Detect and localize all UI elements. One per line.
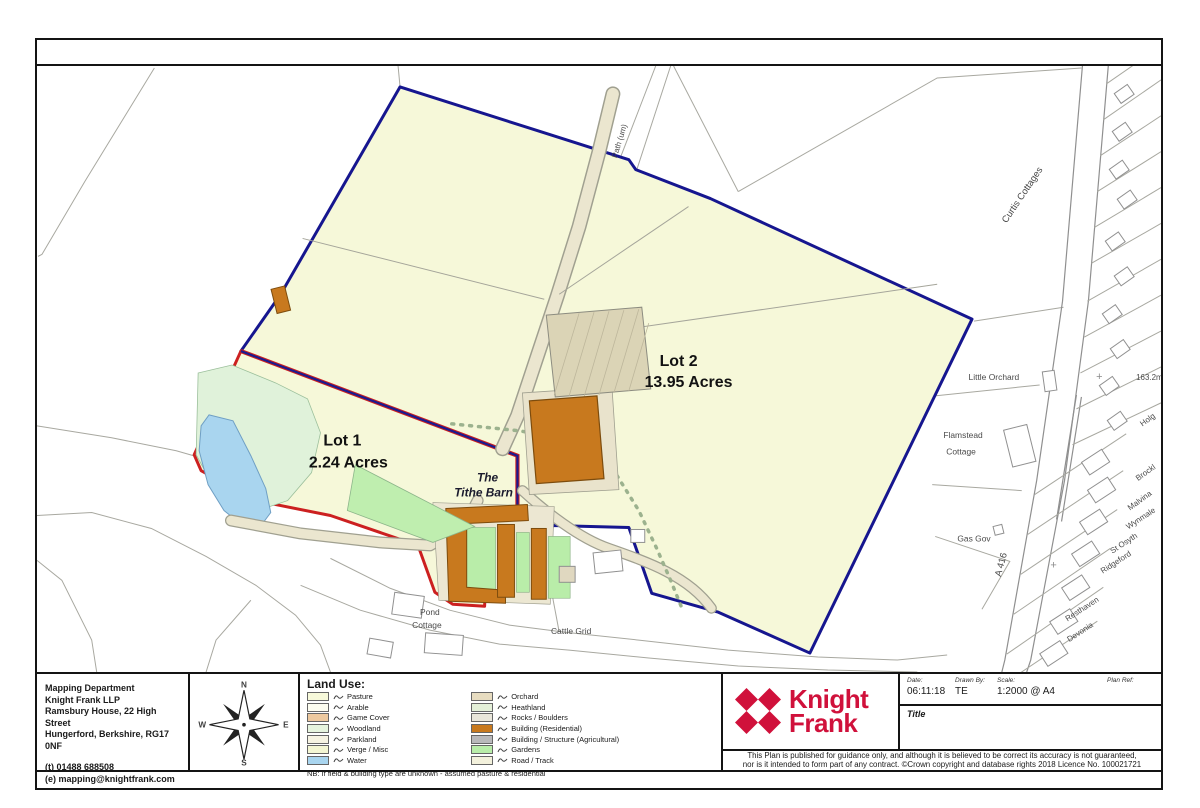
legend-item: Road / Track (471, 756, 714, 766)
legend-item: Building (Residential) (471, 724, 714, 734)
survey-cross-1: + (1096, 371, 1102, 383)
title-field: Title (900, 706, 1161, 749)
field-symbol-icon (333, 735, 344, 743)
svg-text:S: S (241, 759, 247, 766)
tithe-barn-label-2: Tithe Barn (454, 486, 513, 500)
legend-item: Parkland (307, 734, 471, 744)
address-line: Hungerford, Berkshire, RG17 0NF (45, 729, 184, 752)
flamstead-label-2: Cottage (946, 447, 976, 457)
legend-item: Water (307, 756, 471, 766)
svg-text:N: N (241, 680, 247, 689)
field-symbol-icon (497, 735, 508, 743)
flamstead-label-1: Flamstead (943, 430, 983, 440)
address-line: Knight Frank LLP (45, 695, 184, 707)
cattle-grid-label: Cattle Grid (551, 626, 592, 636)
footer: Mapping Department Knight Frank LLP Rams… (37, 674, 1161, 772)
field-symbol-icon (497, 746, 508, 754)
pond-cottage-label: Cottage (412, 620, 442, 630)
field-symbol-icon (497, 756, 508, 764)
map-area: Tithe Barn (37, 66, 1161, 674)
plan-sheet: Tithe Barn (35, 38, 1163, 790)
legend-item: Game Cover (307, 713, 471, 723)
knight-frank-logo: Knight Frank (723, 674, 900, 749)
swatch-heathland (471, 703, 493, 712)
lot1-title: Lot 1 (323, 433, 361, 450)
brand-name-line2: Frank (789, 711, 868, 735)
legend-item: Building / Structure (Agricultural) (471, 734, 714, 744)
legend-note: NB: If field & building type are unknown… (307, 769, 714, 778)
swatch-arable (307, 703, 329, 712)
swatch-orchard (471, 692, 493, 701)
scale-field: Scale: 1:2000 @ A4 (997, 674, 1107, 704)
house-name-holg: Holg (1138, 411, 1157, 428)
swatch-building-agricultural (471, 735, 493, 744)
field-symbol-icon (333, 746, 344, 754)
lot2-area: 13.95 Acres (645, 374, 733, 391)
legend-item: Pasture (307, 692, 471, 702)
legend-item: Woodland (307, 724, 471, 734)
legend-item: Gardens (471, 745, 714, 755)
a416-road (1002, 66, 1108, 672)
date-field: Date: 06:11:18 (907, 674, 955, 704)
path-label: Path (um) (610, 123, 629, 159)
land-use-legend: Land Use: Pasture Arable (300, 674, 723, 770)
field-symbol-icon (333, 703, 344, 711)
field-symbol-icon (333, 693, 344, 701)
address-line: Mapping Department (45, 683, 184, 695)
swatch-woodland (307, 724, 329, 733)
swatch-verge (307, 745, 329, 754)
plan-ref-field: Plan Ref: (1107, 674, 1161, 704)
lot1-area: 2.24 Acres (309, 455, 388, 472)
swatch-pasture (307, 692, 329, 701)
swatch-rocks (471, 713, 493, 722)
legend-item: Orchard (471, 692, 714, 702)
disclaimer-line1: This Plan is published for guidance only… (747, 751, 1136, 761)
svg-text:W: W (198, 720, 206, 729)
residential-building-large (529, 396, 604, 484)
field-symbol-icon (497, 693, 508, 701)
knight-frank-mark-icon (735, 688, 781, 734)
field-symbol-icon (333, 756, 344, 764)
field-symbol-icon (497, 703, 508, 711)
field-symbol-icon (497, 714, 508, 722)
svg-text:E: E (283, 720, 289, 729)
legend-item: Rocks / Boulders (471, 713, 714, 723)
house-name-brock: Brockl (1134, 462, 1157, 482)
tithe-barn-label-1: The (477, 471, 499, 485)
disclaimer-line2: nor is it intended to form part of any c… (743, 760, 1141, 770)
gas-gov-label: Gas Gov (957, 533, 991, 543)
little-orchard-label: Little Orchard (969, 372, 1020, 382)
compass-cell: N E S W (190, 674, 300, 770)
swatch-game-cover (307, 713, 329, 722)
title-block: Date: 06:11:18 Drawn By: TE Scale: 1:200… (900, 674, 1161, 749)
address-line: Ramsbury House, 22 High Street (45, 706, 184, 729)
phone-line: (t) 01488 688508 (45, 762, 184, 774)
swatch-water (307, 756, 329, 765)
disclaimer: This Plan is published for guidance only… (723, 749, 1161, 770)
legend-title: Land Use: (307, 677, 714, 691)
legend-item: Heathland (471, 703, 714, 713)
compass-rose-icon: N E S W (194, 678, 294, 766)
swatch-gardens (471, 745, 493, 754)
field-symbol-icon (333, 714, 344, 722)
drawn-by-field: Drawn By: TE (955, 674, 997, 704)
mapping-department-address: Mapping Department Knight Frank LLP Rams… (37, 674, 190, 770)
site-plan-map: Tithe Barn (37, 66, 1161, 672)
spot-height-label: 163.2m (1136, 373, 1161, 382)
swatch-parkland (307, 735, 329, 744)
legend-item: Arable (307, 703, 471, 713)
curtis-cottages-label: Curtis Cottages (1000, 165, 1046, 225)
swatch-road-track (471, 756, 493, 765)
field-symbol-icon (497, 725, 508, 733)
survey-cross-2: + (1050, 559, 1056, 571)
pond-label: Pond (420, 607, 440, 617)
field-symbol-icon (333, 725, 344, 733)
legend-item: Verge / Misc (307, 745, 471, 755)
swatch-building-residential (471, 724, 493, 733)
email-line: (e) mapping@knightfrank.com (45, 774, 184, 786)
top-strip (37, 40, 1161, 66)
lot2-title: Lot 2 (660, 353, 698, 370)
